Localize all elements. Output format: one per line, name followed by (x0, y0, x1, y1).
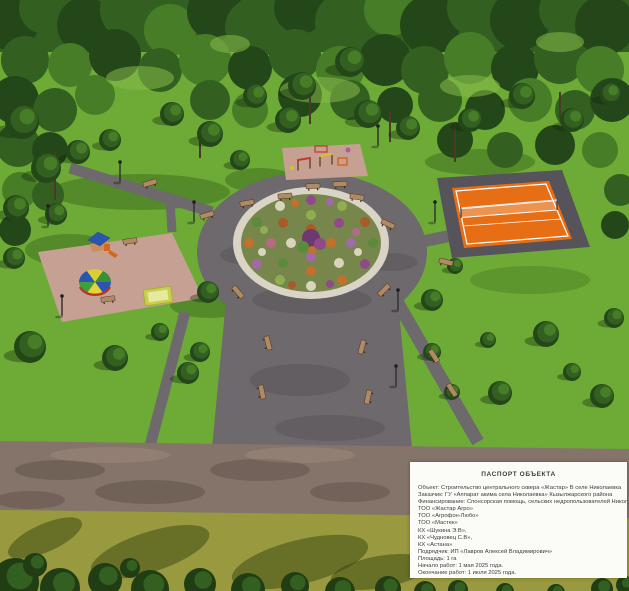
passport-line: ТОО «Мастек» (418, 520, 627, 527)
bush (120, 558, 140, 578)
flower-cluster (278, 218, 288, 228)
passport-line: ТОО «Агрофон-Любо» (418, 513, 627, 520)
passport-title: ПАСПОРТ ОБЪЕКТА (410, 471, 627, 478)
sandbox (143, 286, 173, 306)
grass-patch (536, 32, 584, 52)
tree-canopy (190, 80, 230, 120)
flower-cluster (291, 199, 299, 207)
passport-lines: Объект: Строительство центрального сквер… (418, 485, 627, 577)
tree-canopy (487, 132, 523, 168)
passport-line: Окончание работ: 1 июля 2025 года. (418, 570, 627, 577)
flower-cluster (258, 248, 266, 256)
flower-cluster (278, 258, 288, 268)
flower-cluster (306, 210, 316, 220)
flower-cluster (252, 259, 262, 269)
bush (23, 553, 47, 577)
park-render: ПАСПОРТ ОБЪЕКТА Объект: Строительство це… (0, 0, 629, 591)
flower-cluster (297, 241, 309, 253)
passport-line: Заказчик: ГУ «Аппарат акима села Николае… (418, 492, 627, 499)
flower-cluster (352, 228, 360, 236)
tree-canopy (1, 36, 49, 84)
grass-patch (440, 75, 500, 97)
flower-cluster (368, 238, 378, 248)
flower-cluster (326, 198, 334, 206)
grass-patch (210, 35, 250, 53)
flower-cluster (326, 238, 336, 248)
passport-line: Подрядчик: ИП «Лавров Алексей Владимиров… (418, 549, 627, 556)
flower-cluster (334, 258, 344, 268)
project-passport-panel: ПАСПОРТ ОБЪЕКТА Объект: Строительство це… (410, 462, 627, 578)
flower-cluster (326, 280, 334, 288)
tree-canopy (601, 211, 629, 239)
flower-cluster (346, 238, 356, 248)
flower-cluster (275, 201, 285, 211)
carousel (79, 269, 111, 295)
flower-cluster (337, 275, 347, 285)
flower-cluster (306, 266, 316, 276)
passport-line: ТОО «Жастар Агро» (418, 506, 627, 513)
flower-cluster (252, 217, 262, 227)
flower-cluster (308, 246, 316, 254)
flower-cluster (275, 275, 285, 285)
flower-cluster (288, 281, 296, 289)
flower-cluster (360, 259, 370, 269)
flower-cluster (260, 226, 268, 234)
flower-cluster (266, 238, 276, 248)
flower-cluster (286, 238, 296, 248)
passport-line: КХ «Астана» (418, 542, 627, 549)
tree-canopy (269, 29, 321, 81)
flower-cluster (334, 218, 344, 228)
flower-cluster (306, 195, 316, 205)
tree-canopy (33, 88, 77, 132)
flower-cluster (360, 217, 370, 227)
passport-line: Объект: Строительство центрального сквер… (418, 485, 627, 492)
passport-line: КХ «Шукина Э.В», (418, 528, 627, 535)
workout-area (282, 144, 368, 180)
passport-line: Финансирование: Спонсорская помощь, сель… (418, 499, 627, 506)
tree-canopy (582, 132, 618, 168)
passport-line: Площадь: 1 га (418, 556, 627, 563)
passport-line: КХ «Чудновец С.В», (418, 535, 627, 542)
flower-cluster (337, 201, 347, 211)
flower-cluster (244, 238, 254, 248)
grass-patch (106, 66, 174, 90)
passport-line: Начало работ: 1 мая 2025 года. (418, 563, 627, 570)
flower-cluster (306, 281, 316, 291)
flower-cluster (354, 248, 362, 256)
flower-cluster (314, 238, 326, 250)
